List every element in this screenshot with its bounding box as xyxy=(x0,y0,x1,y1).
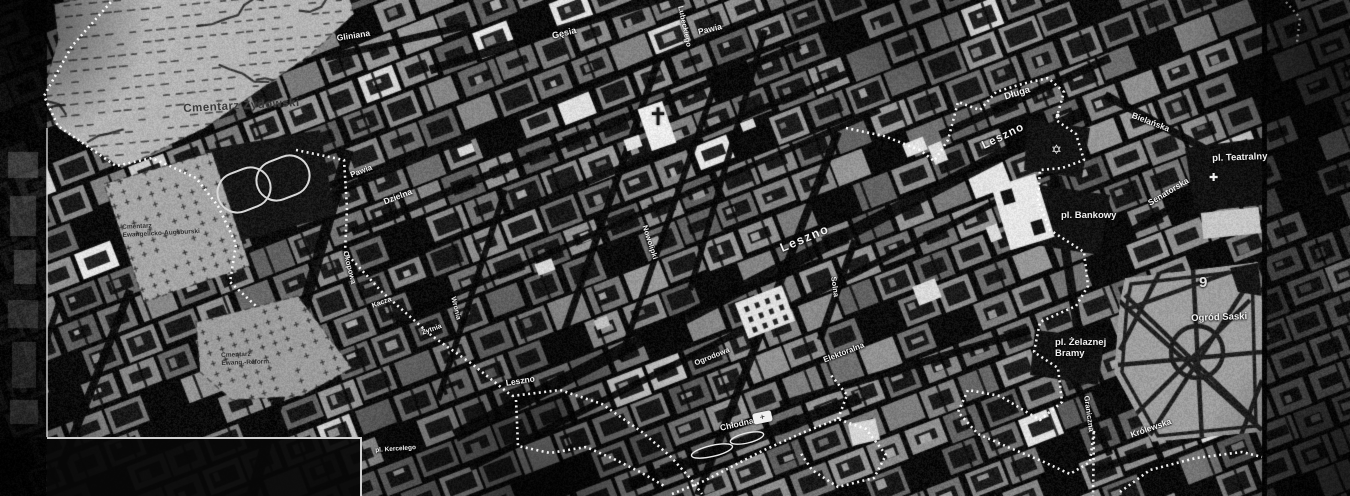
historical-city-map: Cmentarz ŻydowskiCmentarz Ewangelicko-Au… xyxy=(0,0,1350,496)
map-canvas xyxy=(0,0,1350,496)
map-neatline xyxy=(46,128,48,437)
map-inset-box xyxy=(47,437,362,496)
